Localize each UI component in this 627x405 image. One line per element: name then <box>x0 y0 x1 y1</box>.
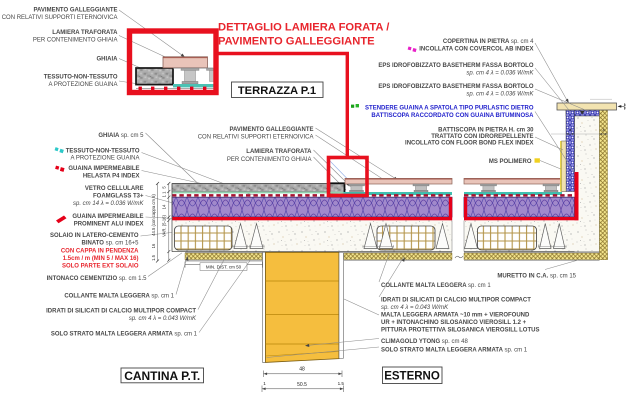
svg-text:LAMIERA TRAFORATA: LAMIERA TRAFORATA <box>246 149 312 155</box>
svg-text:TRATTATO CON IDROREPELLENTE: TRATTATO CON IDROREPELLENTE <box>431 134 533 140</box>
svg-text:VETRO CELLULARE: VETRO CELLULARE <box>85 186 144 192</box>
svg-text:CANTINA P.T.: CANTINA P.T. <box>124 369 200 383</box>
svg-text:1.5cm / m (MIN 5 / MAX 16): 1.5cm / m (MIN 5 / MAX 16) <box>63 256 139 262</box>
svg-text:DETTAGLIO LAMIERA FORATA /: DETTAGLIO LAMIERA FORATA / <box>218 22 389 34</box>
svg-text:BATTISCOPA RACCORDATO CON GUAI: BATTISCOPA RACCORDATO CON GUAINA BITUMIN… <box>371 113 534 119</box>
svg-text:sp. cm 4 λ = 0.043 W/mK: sp. cm 4 λ = 0.043 W/mK <box>381 305 449 311</box>
svg-text:PAVIMENTO GALLEGGIANTE: PAVIMENTO GALLEGGIANTE <box>229 127 313 133</box>
svg-text:sp. cm 4 λ = 0.043 W/mK: sp. cm 4 λ = 0.043 W/mK <box>129 316 197 322</box>
svg-text:CLIMAGOLD YTONG sp. cm 48: CLIMAGOLD YTONG sp. cm 48 <box>381 339 468 345</box>
svg-text:PITTURA PROTETTIVA SILOSANICA: PITTURA PROTETTIVA SILOSANICA VIEROSILL … <box>381 328 539 334</box>
svg-text:EPS IDROFOBIZZATO BASETHERM FA: EPS IDROFOBIZZATO BASETHERM FASSA BORTOL… <box>378 63 533 69</box>
svg-text:44.5 (con cappa cm 5): 44.5 (con cappa cm 5) <box>151 194 156 236</box>
svg-text:GUAINA IMPERMEABILE: GUAINA IMPERMEABILE <box>68 166 139 172</box>
svg-text:SOLO STRATO MALTA LEGGERA ARMA: SOLO STRATO MALTA LEGGERA ARMATA sp. cm … <box>51 332 198 338</box>
svg-text:CON CAPPA IN PENDENZA: CON CAPPA IN PENDENZA <box>61 249 139 255</box>
svg-text:GHIAIA sp. cm 5: GHIAIA sp. cm 5 <box>98 133 144 139</box>
svg-text:INCOLLATA CON COVERCOL AB INDE: INCOLLATA CON COVERCOL AB INDEX <box>419 47 533 53</box>
svg-text:INTONACO CEMENTIZIO sp. cm 1.5: INTONACO CEMENTIZIO sp. cm 1.5 <box>47 276 148 282</box>
svg-text:EPS IDROFOBIZZATO BASETHERM FA: EPS IDROFOBIZZATO BASETHERM FASSA BORTOL… <box>378 84 533 90</box>
svg-text:SOLO STRATO MALTA LEGGERA ARMA: SOLO STRATO MALTA LEGGERA ARMATA sp. cm … <box>381 348 528 354</box>
svg-text:BATTISCOPA IN PIETRA H. cm 30: BATTISCOPA IN PIETRA H. cm 30 <box>438 128 534 134</box>
svg-text:A PROTEZIONE GUAINA: A PROTEZIONE GUAINA <box>48 82 117 88</box>
svg-text:SOLO PARTE EXT SOLAIO: SOLO PARTE EXT SOLAIO <box>62 264 139 270</box>
svg-text:1.5: 1.5 <box>338 381 345 386</box>
svg-text:SOLAIO IN LATERO-CEMENTO: SOLAIO IN LATERO-CEMENTO <box>50 233 139 239</box>
svg-text:CON RELATIVI SUPPORTI ETERNOIV: CON RELATIVI SUPPORTI ETERNOIVICA <box>198 135 314 141</box>
svg-text:sp. cm 4 λ = 0.036 W/mK: sp. cm 4 λ = 0.036 W/mK <box>466 92 534 98</box>
svg-text:MS POLIMERO: MS POLIMERO <box>489 159 532 165</box>
svg-text:COPERTINA IN PIETRA sp. cm 4: COPERTINA IN PIETRA sp. cm 4 <box>443 39 534 45</box>
svg-text:ESTERNO: ESTERNO <box>384 371 440 383</box>
svg-text:PAVIMENTO GALLEGGIANTE: PAVIMENTO GALLEGGIANTE <box>33 8 117 14</box>
svg-text:FOAMGLASS T3+: FOAMGLASS T3+ <box>93 194 144 200</box>
svg-text:1 1: 1 1 <box>161 191 166 197</box>
svg-text:GHIAIA: GHIAIA <box>97 57 119 63</box>
svg-text:TESSUTO-NON-TESSUTO: TESSUTO-NON-TESSUTO <box>66 148 140 154</box>
svg-text:INCOLLATO CON FLOOR BOND FLEX: INCOLLATO CON FLOOR BOND FLEX INDEX <box>405 141 533 147</box>
svg-text:STENDERE GUAINA A SPATOLA TIPO: STENDERE GUAINA A SPATOLA TIPO PURLASTIC… <box>365 106 534 112</box>
svg-text:BINATO sp. cm 16+5: BINATO sp. cm 16+5 <box>82 241 140 247</box>
svg-text:IDRATI DI SILICATI DI CALCIO M: IDRATI DI SILICATI DI CALCIO MULTIPOR CO… <box>46 309 196 315</box>
svg-text:LAMIERA TRAFORATA: LAMIERA TRAFORATA <box>52 30 118 36</box>
svg-text:TERRAZZA P.1: TERRAZZA P.1 <box>238 85 316 97</box>
svg-text:PAVIMENTO GALLEGGIANTE: PAVIMENTO GALLEGGIANTE <box>218 36 375 48</box>
svg-text:UR + INTONACHINO SILOSANICO VI: UR + INTONACHINO SILOSANICO VIEROSILL 1.… <box>381 320 527 326</box>
svg-text:sp. cm 14 λ = 0.036 W/mK: sp. cm 14 λ = 0.036 W/mK <box>73 201 144 207</box>
svg-text:48: 48 <box>299 367 305 373</box>
svg-text:CON RELATIVI SUPPORTI ETERNOIV: CON RELATIVI SUPPORTI ETERNOIVICA <box>2 15 118 21</box>
svg-text:1.5: 1.5 <box>151 254 156 260</box>
svg-text:sp. cm 4 λ = 0.036 W/mK: sp. cm 4 λ = 0.036 W/mK <box>466 71 534 77</box>
svg-text:1: 1 <box>263 381 266 386</box>
svg-text:MALTA LEGGERA ARMATA ~10 mm +: MALTA LEGGERA ARMATA ~10 mm + VIEROFOUND <box>381 313 530 319</box>
svg-text:HELASTA P4 INDEX: HELASTA P4 INDEX <box>83 173 140 179</box>
svg-text:TESSUTO-NON-TESSUTO: TESSUTO-NON-TESSUTO <box>44 75 118 81</box>
svg-text:COLLANTE MALTA LEGGERA sp. cm: COLLANTE MALTA LEGGERA sp. cm 1 <box>381 283 491 289</box>
svg-text:16: 16 <box>151 243 156 248</box>
svg-text:MURETTO IN C.A. sp. cm 15: MURETTO IN C.A. sp. cm 15 <box>497 274 576 280</box>
svg-text:COLLANTE MALTA LEGGERA sp. cm: COLLANTE MALTA LEGGERA sp. cm 1 <box>64 294 174 300</box>
svg-text:PER CONTENIMENTO GHIAIA: PER CONTENIMENTO GHIAIA <box>33 38 118 44</box>
svg-text:14: 14 <box>161 204 166 209</box>
svg-text:A PROTEZIONE GUAINA: A PROTEZIONE GUAINA <box>70 155 139 161</box>
svg-text:IDRATI DI SILICATI DI CALCIO M: IDRATI DI SILICATI DI CALCIO MULTIPOR CO… <box>381 298 531 304</box>
svg-text:GUAINA IMPERMEABILE: GUAINA IMPERMEABILE <box>72 214 143 220</box>
svg-text:PER CONTENIMENTO GHIAIA: PER CONTENIMENTO GHIAIA <box>227 157 312 163</box>
svg-text:VAR. (5-16): VAR. (5-16) <box>161 214 166 236</box>
svg-text:PROMINENT ALU INDEX: PROMINENT ALU INDEX <box>74 222 144 228</box>
svg-text:50.5: 50.5 <box>297 382 307 388</box>
svg-text:MIN. DIST. cm 50: MIN. DIST. cm 50 <box>206 264 242 269</box>
